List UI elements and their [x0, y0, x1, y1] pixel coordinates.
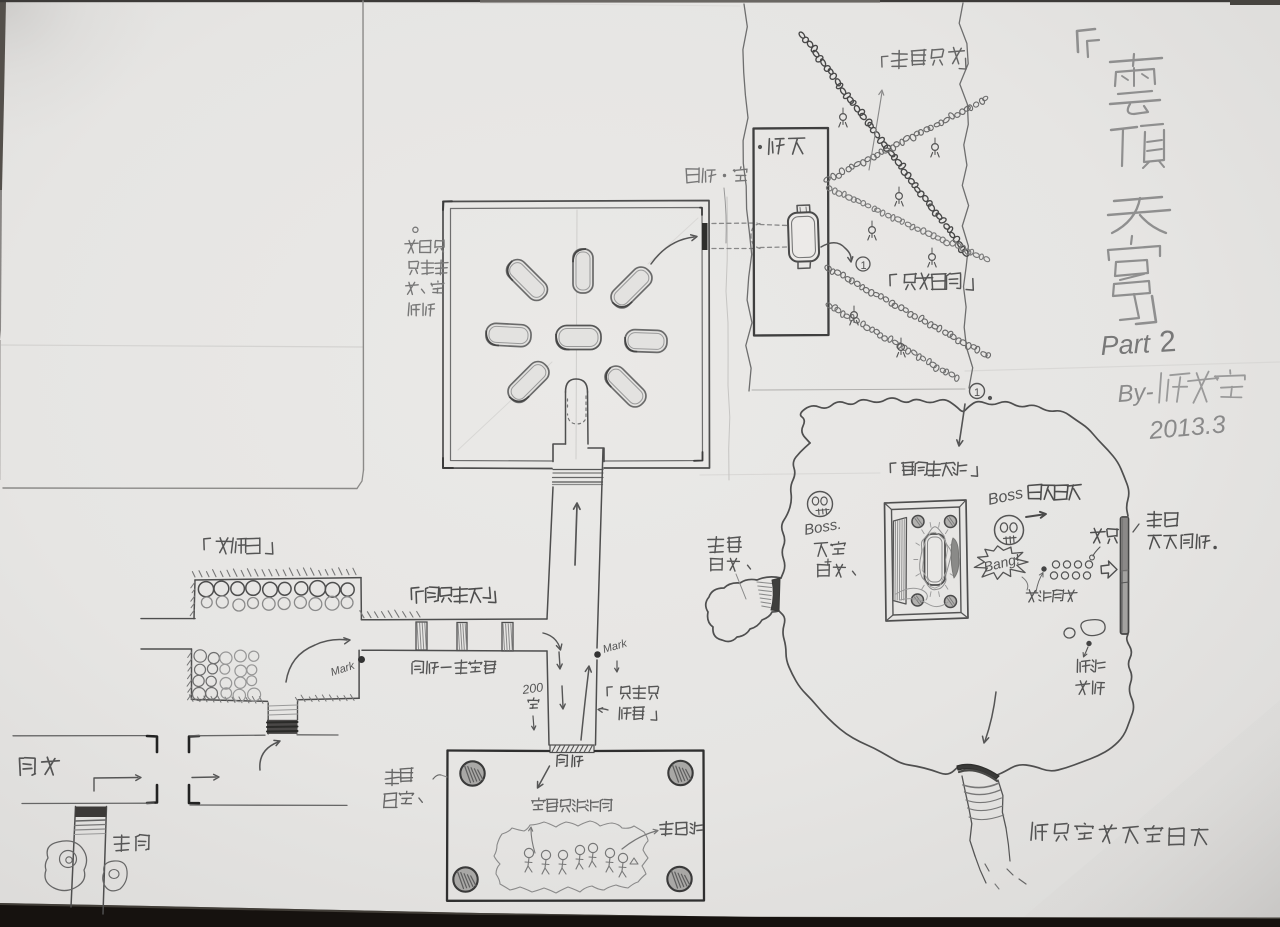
svg-text:2: 2 [1158, 325, 1177, 359]
svg-text:1: 1 [974, 387, 980, 399]
svg-text:By-: By- [1117, 379, 1155, 408]
svg-text:1: 1 [861, 260, 867, 272]
svg-text:Part: Part [1100, 328, 1153, 361]
